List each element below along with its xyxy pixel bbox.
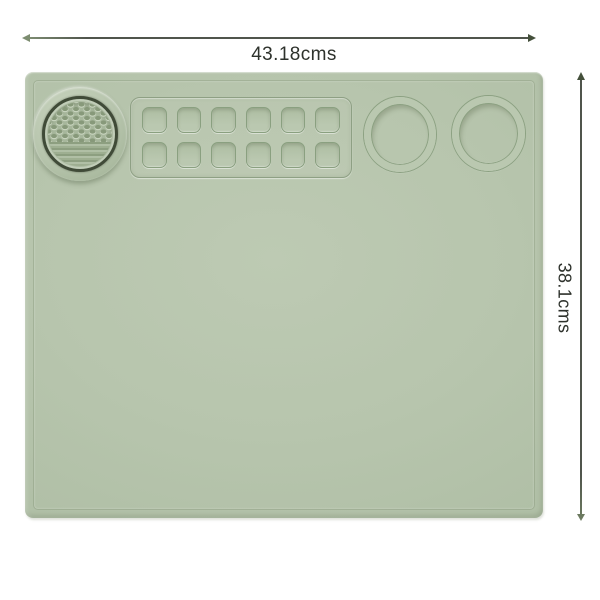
cup-holder-ring (364, 97, 436, 172)
paint-well (315, 107, 340, 133)
paint-well (246, 107, 271, 133)
brush-cup-rim (42, 96, 118, 172)
paint-well (142, 107, 167, 133)
paint-well (281, 142, 306, 168)
paint-well (281, 107, 306, 133)
arrow-up-icon (577, 72, 585, 80)
height-dimension-line (580, 78, 582, 518)
paint-well (177, 142, 202, 168)
cup-holder-ring (452, 96, 525, 171)
arrow-left-icon (22, 34, 30, 42)
silicone-craft-mat (25, 72, 543, 518)
paint-wells-grid (130, 97, 352, 178)
paint-well (211, 107, 236, 133)
brush-cup-ridges (48, 142, 112, 166)
brush-cup-bumps (48, 102, 112, 142)
brush-cleaning-cup (33, 87, 127, 181)
arrow-right-icon (528, 34, 536, 42)
arrow-down-icon (577, 514, 585, 521)
paint-well (177, 107, 202, 133)
paint-well (211, 142, 236, 168)
width-dimension-line (26, 37, 532, 39)
brush-cup-texture (48, 102, 112, 166)
paint-well (142, 142, 167, 168)
width-dimension-label: 43.18cms (251, 44, 337, 66)
product-image: 43.18cms 38.1cms (0, 0, 600, 600)
paint-well (315, 142, 340, 168)
paint-well (246, 142, 271, 168)
height-dimension-label: 38.1cms (554, 263, 575, 334)
